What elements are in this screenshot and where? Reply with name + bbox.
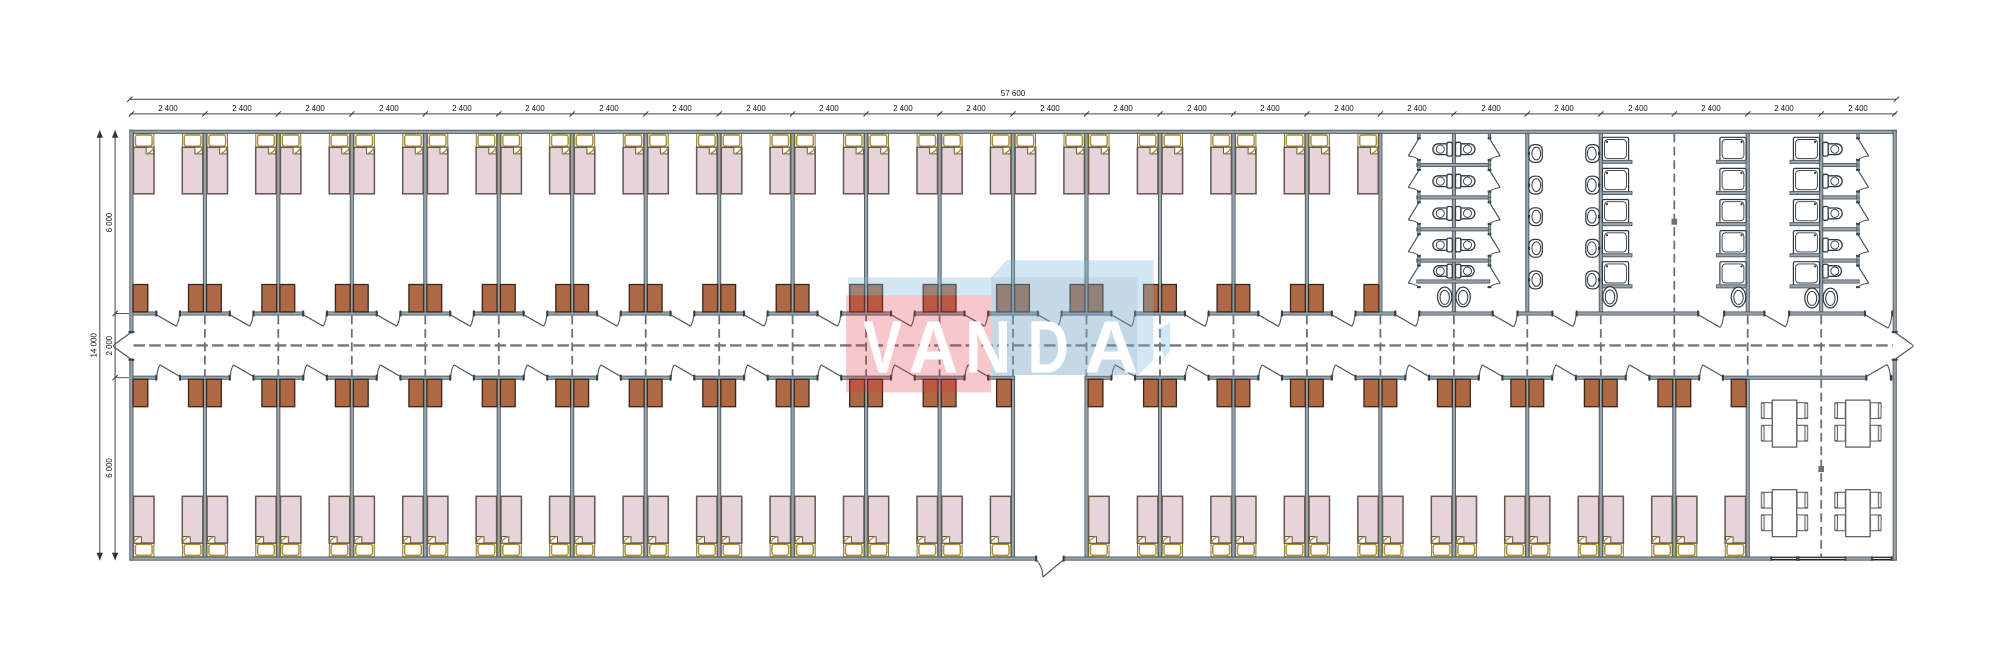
svg-text:2 400: 2 400 — [379, 104, 399, 113]
svg-text:6 000: 6 000 — [105, 458, 114, 478]
svg-text:2 400: 2 400 — [1481, 104, 1501, 113]
svg-text:2 400: 2 400 — [672, 104, 692, 113]
svg-text:2 400: 2 400 — [232, 104, 252, 113]
svg-text:2 400: 2 400 — [1848, 104, 1868, 113]
svg-text:2 400: 2 400 — [1554, 104, 1574, 113]
svg-text:D: D — [1028, 306, 1069, 389]
svg-text:2 400: 2 400 — [305, 104, 325, 113]
svg-text:2 400: 2 400 — [1774, 104, 1794, 113]
svg-text:2 400: 2 400 — [599, 104, 619, 113]
svg-text:2 400: 2 400 — [1628, 104, 1648, 113]
svg-text:A: A — [909, 306, 958, 389]
svg-text:2 400: 2 400 — [966, 104, 986, 113]
svg-text:2 000: 2 000 — [105, 335, 114, 355]
svg-text:2 400: 2 400 — [1113, 104, 1133, 113]
svg-text:2 400: 2 400 — [1260, 104, 1280, 113]
svg-text:2 400: 2 400 — [525, 104, 545, 113]
svg-text:2 400: 2 400 — [1187, 104, 1207, 113]
svg-text:2 400: 2 400 — [1407, 104, 1427, 113]
svg-text:A: A — [1084, 306, 1138, 389]
svg-text:V: V — [863, 306, 902, 389]
svg-text:2 400: 2 400 — [819, 104, 839, 113]
svg-text:2 400: 2 400 — [746, 104, 766, 113]
svg-text:6 000: 6 000 — [105, 212, 114, 232]
svg-text:2 400: 2 400 — [452, 104, 472, 113]
svg-text:57 600: 57 600 — [1001, 89, 1026, 98]
svg-text:2 400: 2 400 — [158, 104, 178, 113]
svg-text:14 000: 14 000 — [90, 333, 99, 358]
svg-text:2 400: 2 400 — [1334, 104, 1354, 113]
svg-text:2 400: 2 400 — [893, 104, 913, 113]
svg-text:2 400: 2 400 — [1701, 104, 1721, 113]
svg-text:2 400: 2 400 — [1040, 104, 1060, 113]
svg-text:N: N — [965, 306, 1011, 389]
